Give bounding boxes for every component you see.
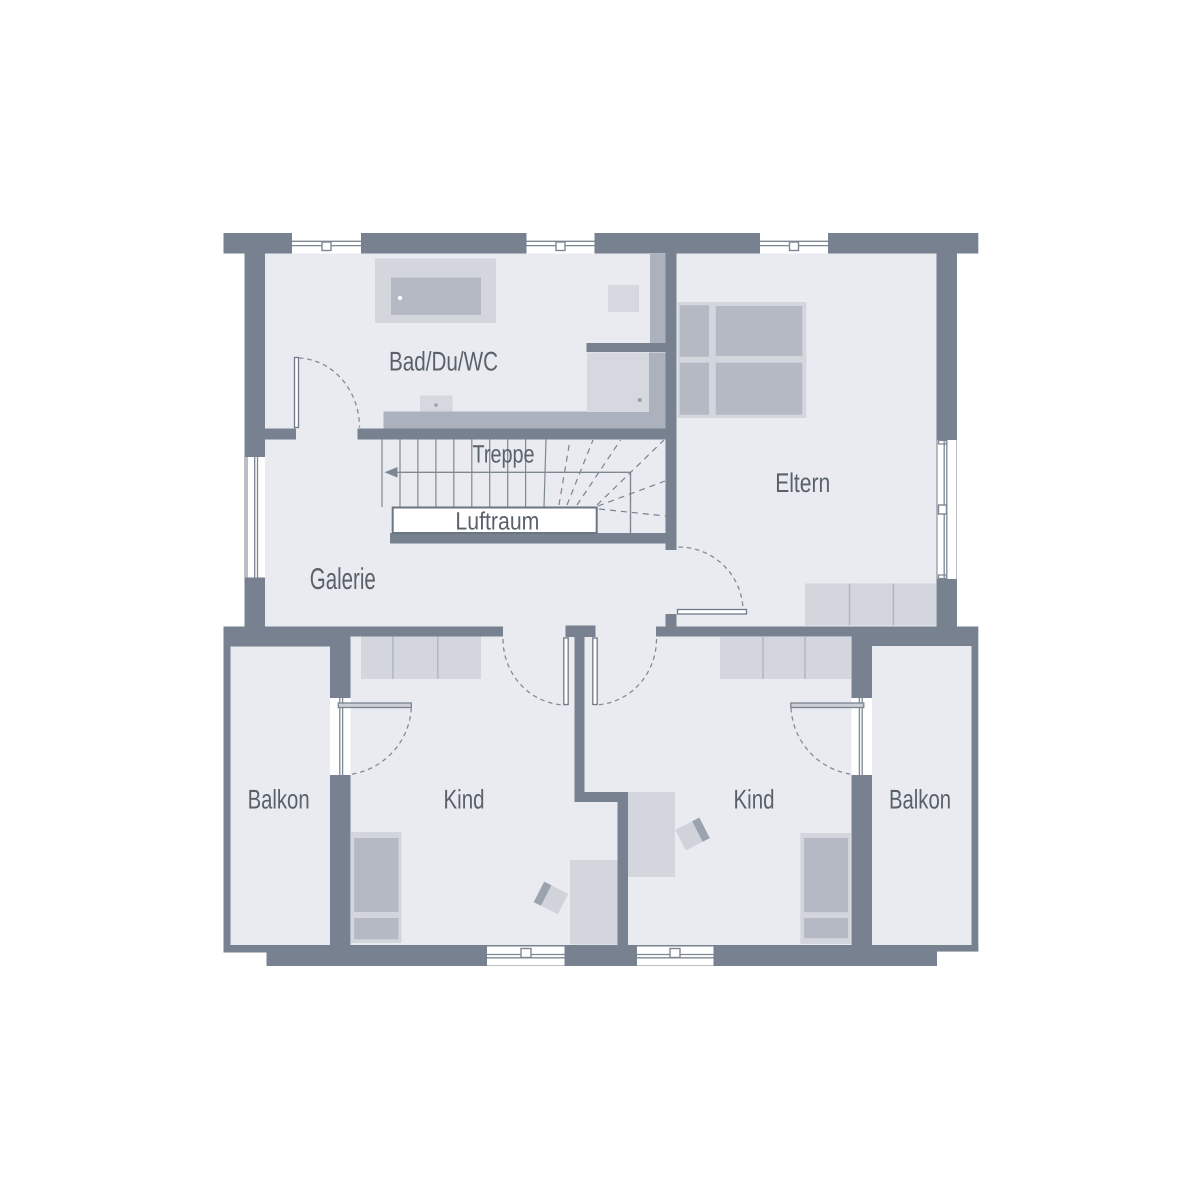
svg-text:Treppe: Treppe [473, 441, 535, 469]
svg-text:Eltern: Eltern [775, 468, 830, 498]
svg-text:Kind: Kind [444, 785, 485, 815]
svg-text:Balkon: Balkon [248, 785, 310, 815]
svg-text:Bad/Du/WC: Bad/Du/WC [389, 347, 498, 377]
svg-text:Kind: Kind [734, 785, 775, 815]
svg-text:Galerie: Galerie [310, 563, 376, 596]
svg-text:Balkon: Balkon [889, 785, 951, 815]
svg-text:Luftraum: Luftraum [455, 508, 539, 536]
